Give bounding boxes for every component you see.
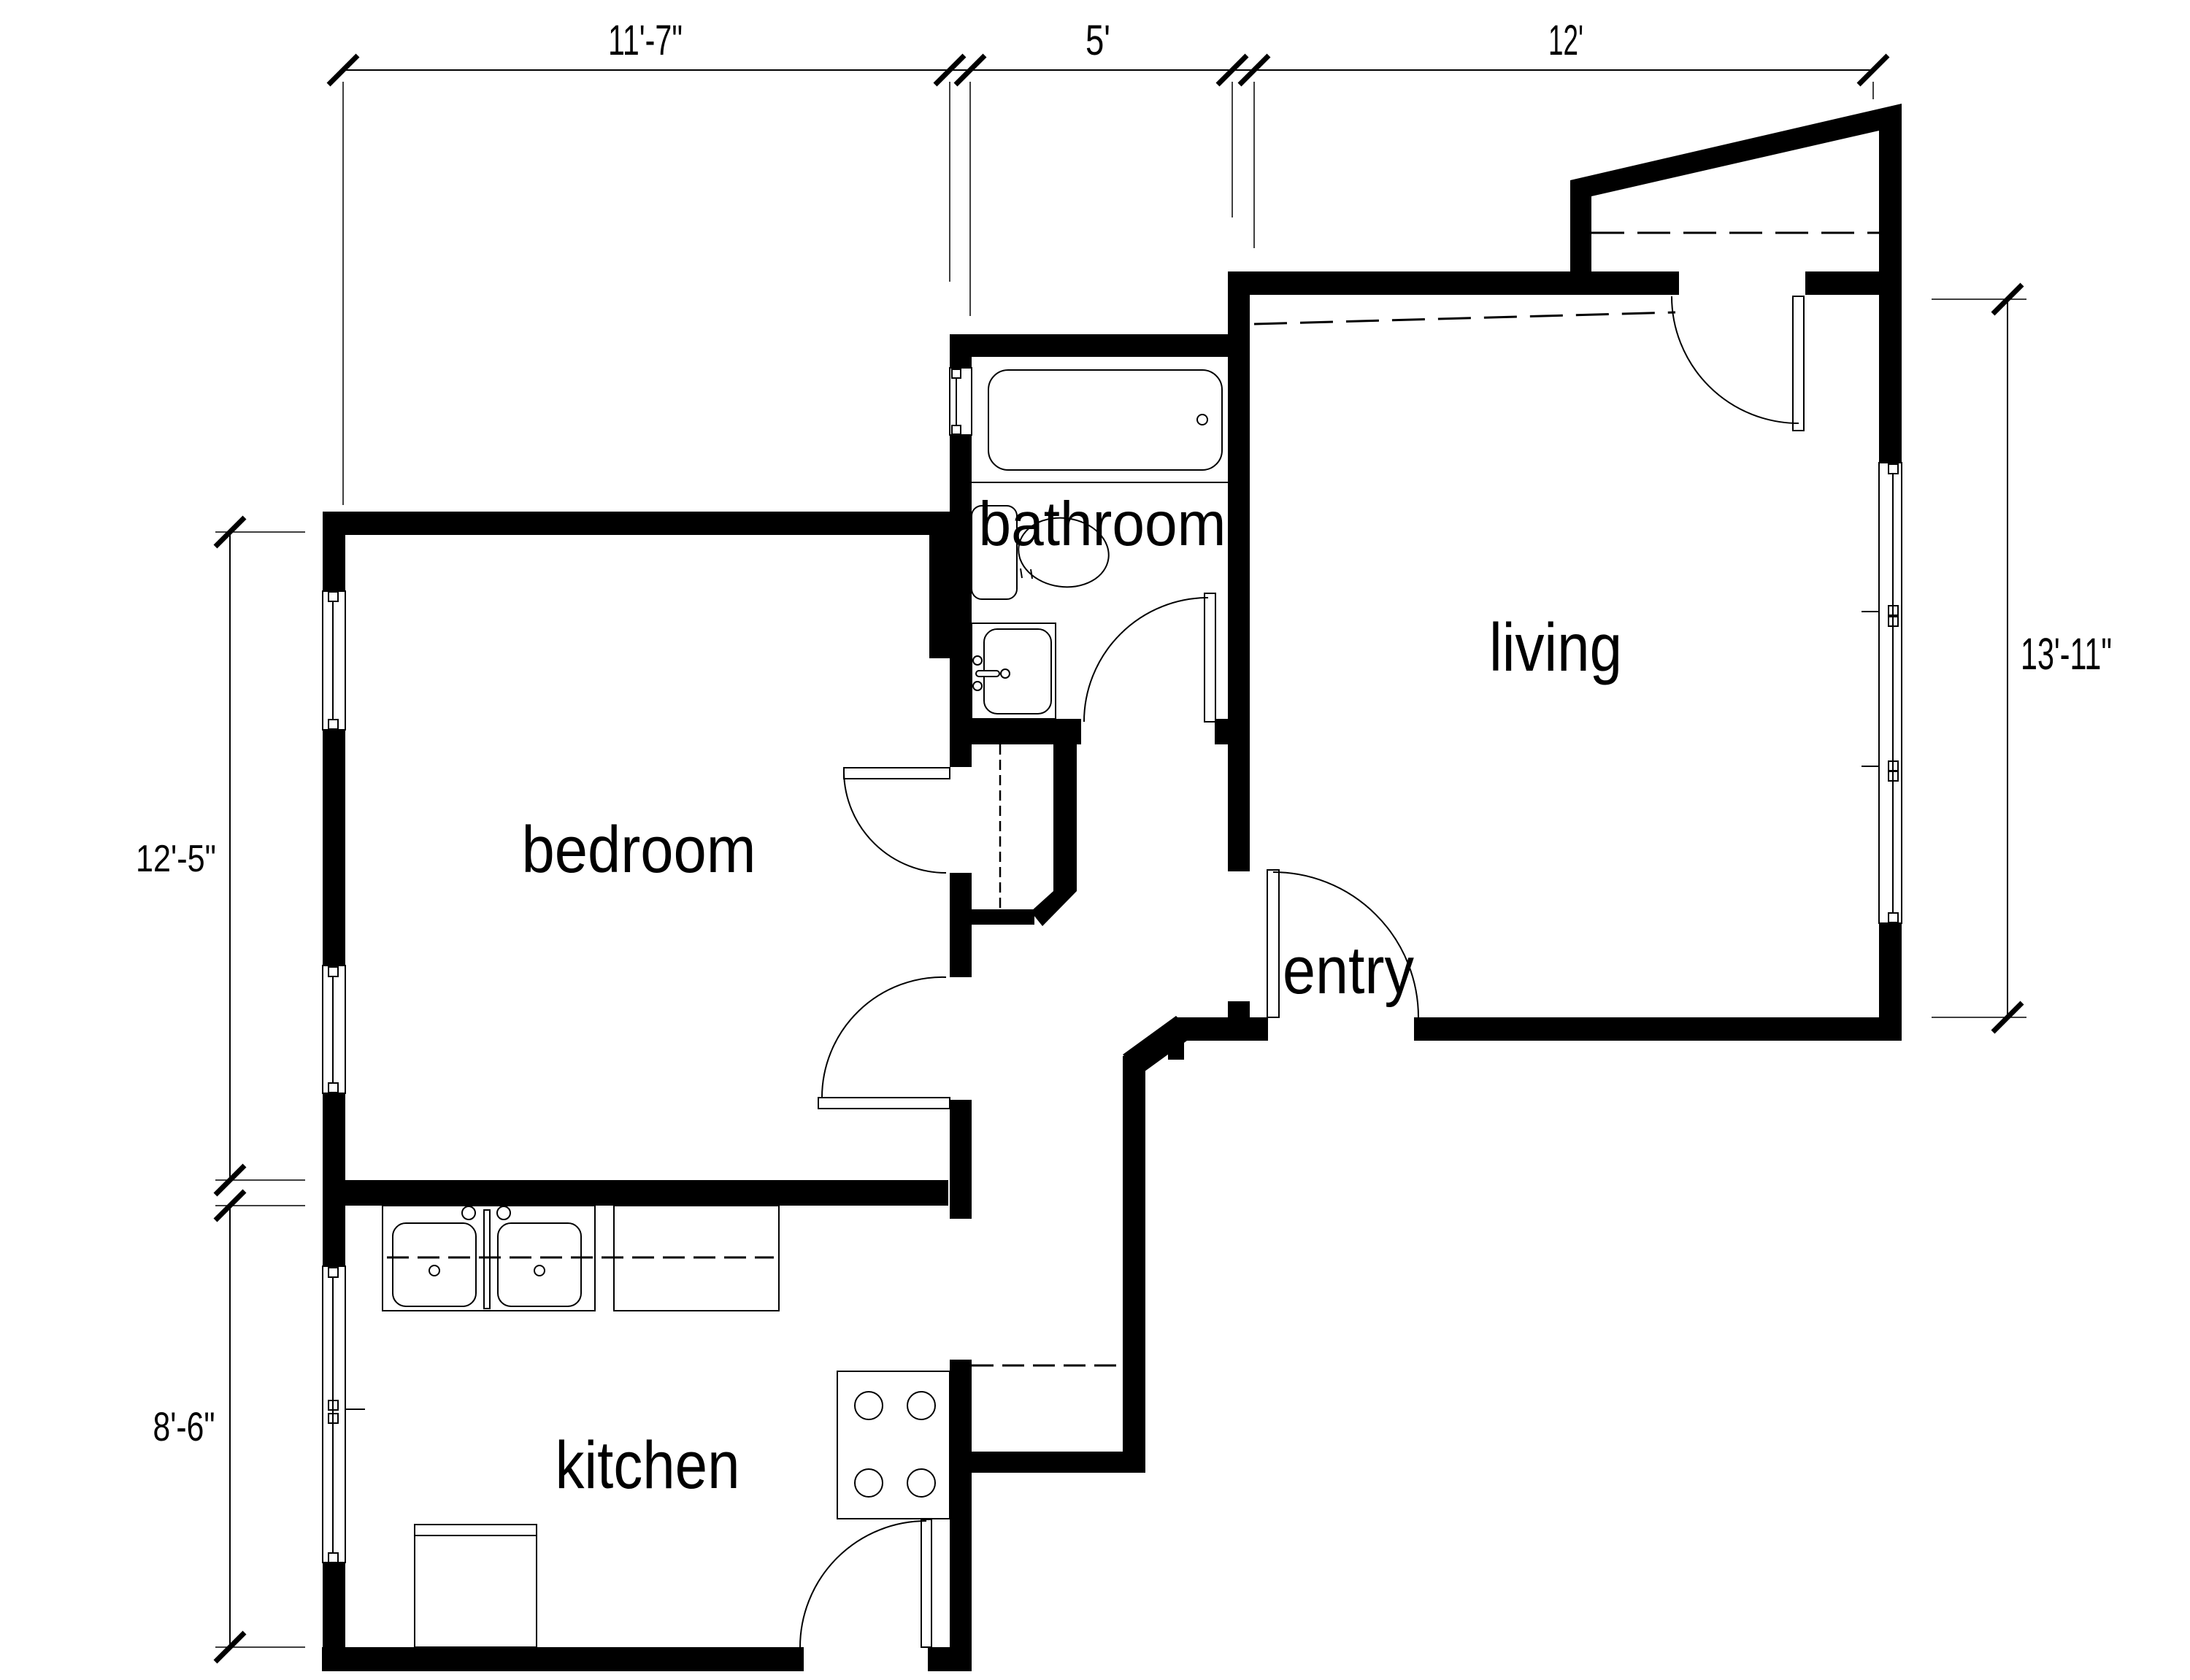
svg-text:5': 5' — [1086, 17, 1110, 64]
svg-text:8'-6": 8'-6" — [153, 1403, 215, 1449]
svg-text:entry: entry — [1283, 933, 1414, 1008]
svg-text:11'-7": 11'-7" — [608, 17, 683, 64]
svg-text:bathroom: bathroom — [979, 490, 1226, 559]
svg-text:12': 12' — [1548, 17, 1583, 64]
svg-text:12'-5": 12'-5" — [136, 838, 216, 880]
svg-text:13'-11": 13'-11" — [2021, 629, 2112, 679]
svg-text:kitchen: kitchen — [556, 1428, 740, 1503]
svg-text:living: living — [1489, 609, 1622, 685]
svg-text:bedroom: bedroom — [522, 814, 756, 887]
